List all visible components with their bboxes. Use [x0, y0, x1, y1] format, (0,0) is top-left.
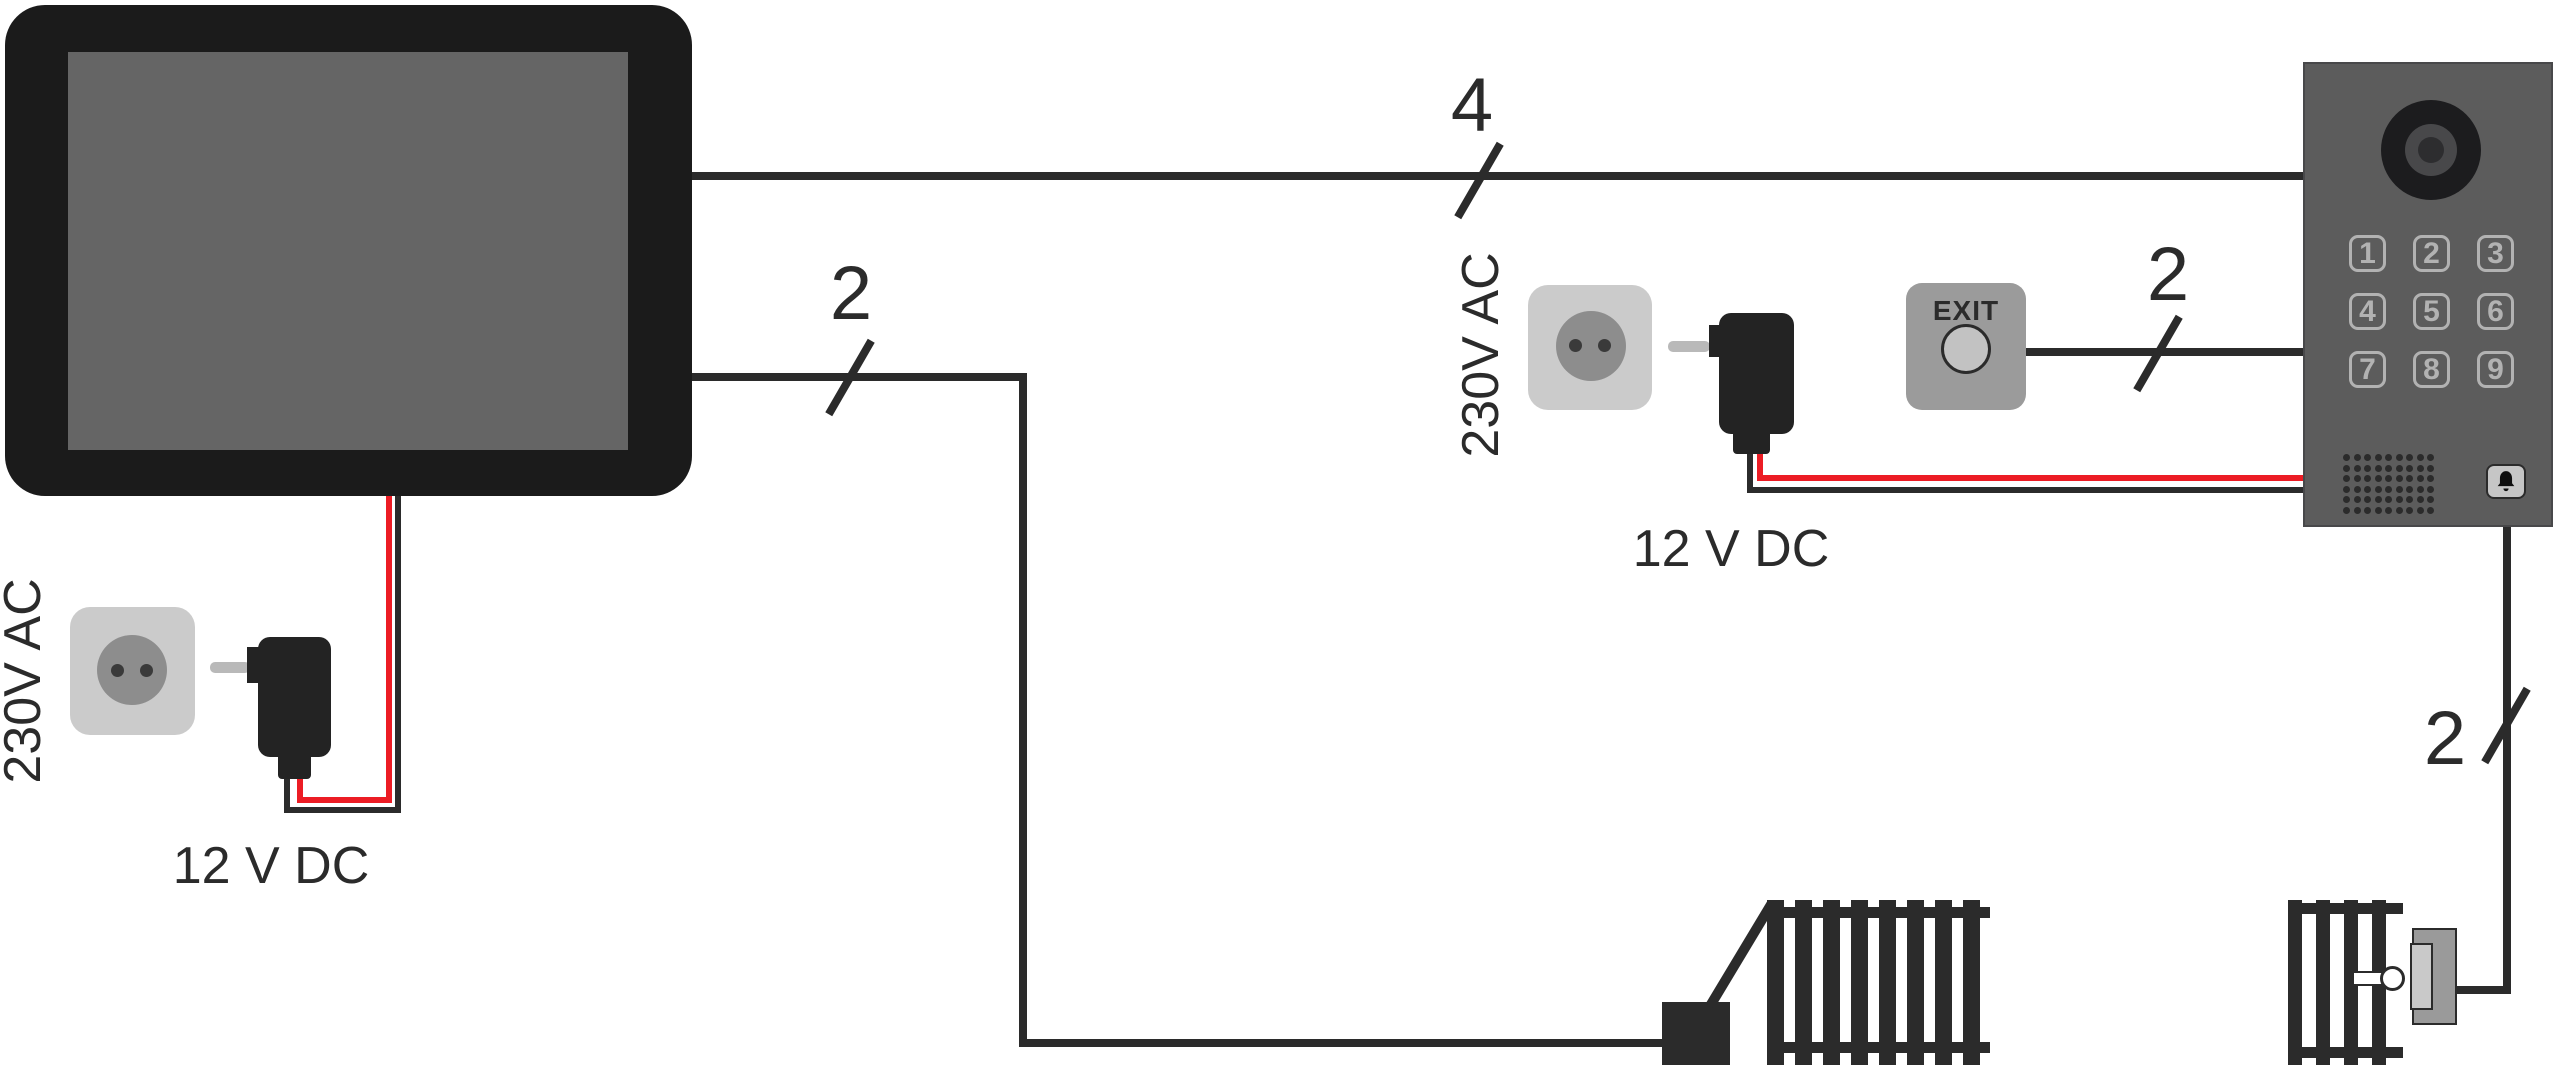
strike-wire-from-panel: [2455, 986, 2511, 994]
coil-bar: [2288, 900, 2302, 1065]
keypad-key-3: 3: [2477, 235, 2514, 272]
lock-wire-from-monitor: [692, 373, 1027, 381]
coil-bar: [1851, 900, 1868, 1065]
speaker-dot: [2417, 454, 2424, 461]
speaker-dot: [2354, 496, 2361, 503]
speaker-dot: [2417, 475, 2424, 482]
speaker-dot: [2406, 507, 2413, 514]
left-power-adapter: [278, 757, 311, 779]
lock-wire-from-monitor: [1019, 1039, 1670, 1047]
left-dc-cable-black: [284, 775, 290, 813]
middle-power-adapter: [1733, 434, 1770, 454]
left-dc-cable-red: [386, 490, 392, 803]
speaker-dot: [2396, 465, 2403, 472]
speaker-dot: [2375, 454, 2382, 461]
lock-connector-block: [1662, 1002, 1730, 1065]
middle-dc-cable-black: [1747, 487, 2303, 493]
speaker-dot: [2354, 454, 2361, 461]
speaker-dot: [2364, 496, 2371, 503]
keypad-key-6: 6: [2477, 293, 2514, 330]
strike-wire-from-panel: [2503, 527, 2511, 994]
left-dc-cable-red: [297, 797, 392, 803]
speaker-dot: [2364, 486, 2371, 493]
exit-pushbutton-icon: [1941, 324, 1991, 374]
wire-count-slash: [1454, 142, 1503, 220]
socket-hole-icon: [111, 664, 124, 677]
keypad-key-8: 8: [2413, 351, 2450, 388]
speaker-dot: [2406, 496, 2413, 503]
door-station-panel: 1 2 3 4 5 6 7 8 9: [2303, 62, 2553, 527]
speaker-dot: [2417, 486, 2424, 493]
speaker-dot: [2364, 454, 2371, 461]
middle-dc-cable-red: [1757, 475, 2303, 481]
speaker-dot: [2375, 486, 2382, 493]
coil-bar: [1879, 900, 1896, 1065]
speaker-dot: [2417, 496, 2424, 503]
latch-bolt-knob: [2380, 966, 2405, 991]
middle-dc-label: 12 V DC: [1581, 521, 1881, 577]
bus-wire-monitor-to-panel: [692, 172, 2303, 180]
socket-hole-icon: [140, 664, 153, 677]
left-dc-cable-red: [297, 775, 303, 803]
speaker-dot: [2354, 465, 2361, 472]
coil-bar: [1963, 900, 1980, 1065]
plug-prong: [210, 662, 250, 673]
speaker-dot: [2396, 475, 2403, 482]
lock-lead-line: [1706, 900, 1777, 1009]
speaker-dot: [2427, 507, 2434, 514]
middle-wall-outlet: [1528, 285, 1652, 410]
speaker-dot: [2354, 507, 2361, 514]
speaker-dot: [2343, 454, 2350, 461]
doorbell-icon: [2493, 470, 2519, 494]
socket-hole-icon: [1598, 339, 1611, 352]
strike-wire-count-label: 2: [2405, 699, 2485, 779]
speaker-dot: [2406, 454, 2413, 461]
keypad-key-1: 1: [2349, 235, 2386, 272]
speaker-dot: [2417, 507, 2424, 514]
keypad-key-2: 2: [2413, 235, 2450, 272]
speaker-dot: [2427, 475, 2434, 482]
speaker-dot: [2375, 496, 2382, 503]
left-wall-outlet: [70, 607, 195, 735]
speaker-dot: [2385, 507, 2392, 514]
speaker-dot: [2396, 486, 2403, 493]
coil-bar: [1823, 900, 1840, 1065]
socket-icon: [97, 635, 167, 705]
middle-power-adapter: [1719, 313, 1794, 434]
left-mains-label: 230V AC: [0, 571, 49, 791]
socket-hole-icon: [1569, 339, 1582, 352]
speaker-dot: [2406, 465, 2413, 472]
doorbell-button: [2486, 464, 2526, 499]
exit-button-label: EXIT: [1906, 295, 2026, 327]
speaker-dot: [2427, 465, 2434, 472]
speaker-dot: [2396, 496, 2403, 503]
speaker-dot: [2427, 496, 2434, 503]
coil-bar: [2316, 900, 2330, 1065]
plug-prong: [1668, 341, 1710, 352]
left-dc-label: 12 V DC: [121, 838, 421, 894]
speaker-dot: [2385, 496, 2392, 503]
coil-bar: [1907, 900, 1924, 1065]
monitor-screen: [68, 52, 628, 450]
speaker-dot: [2385, 465, 2392, 472]
speaker-dot: [2343, 507, 2350, 514]
left-power-adapter: [258, 637, 331, 757]
speaker-dot: [2385, 475, 2392, 482]
exit-wire-count-label: 2: [2128, 235, 2208, 315]
bus-wire-count-label: 4: [1432, 66, 1512, 146]
speaker-dot: [2427, 454, 2434, 461]
speaker-dot: [2406, 475, 2413, 482]
coil-bar: [1935, 900, 1952, 1065]
exit-button-device: EXIT: [1906, 283, 2026, 410]
speaker-dot: [2343, 496, 2350, 503]
keypad-key-4: 4: [2349, 293, 2386, 330]
speaker-dot: [2396, 454, 2403, 461]
left-dc-cable-black: [284, 807, 401, 813]
speaker-dot: [2417, 465, 2424, 472]
keypad-key-5: 5: [2413, 293, 2450, 330]
speaker-dot: [2375, 507, 2382, 514]
speaker-grille-icon: [2343, 454, 2435, 514]
middle-mains-label: 230V AC: [1455, 245, 1507, 465]
speaker-dot: [2364, 465, 2371, 472]
speaker-dot: [2354, 486, 2361, 493]
left-dc-cable-black: [395, 490, 401, 813]
electric-lock-coil: [1767, 900, 1980, 1065]
indoor-monitor: [5, 5, 692, 496]
strike-plate-face: [2410, 943, 2433, 1010]
monitor-lock-wire-count-label: 2: [811, 254, 891, 334]
keypad-key-7: 7: [2349, 351, 2386, 388]
coil-bar: [1767, 900, 1784, 1065]
socket-icon: [1556, 311, 1626, 381]
coil-bar: [1795, 900, 1812, 1065]
speaker-dot: [2396, 507, 2403, 514]
wiring-diagram: 4 2 2 2 230V AC 12 V DC 230V AC 12 V DC …: [0, 0, 2560, 1065]
speaker-dot: [2343, 475, 2350, 482]
speaker-dot: [2364, 507, 2371, 514]
speaker-dot: [2406, 486, 2413, 493]
keypad-key-9: 9: [2477, 351, 2514, 388]
speaker-dot: [2354, 475, 2361, 482]
speaker-dot: [2343, 465, 2350, 472]
speaker-dot: [2375, 465, 2382, 472]
speaker-dot: [2427, 486, 2434, 493]
lock-wire-from-monitor: [1019, 373, 1027, 1047]
camera-lens-icon: [2418, 137, 2444, 163]
speaker-dot: [2375, 475, 2382, 482]
speaker-dot: [2343, 486, 2350, 493]
speaker-dot: [2364, 475, 2371, 482]
speaker-dot: [2385, 454, 2392, 461]
speaker-dot: [2385, 486, 2392, 493]
door-station-keypad: 1 2 3 4 5 6 7 8 9: [2349, 235, 2514, 388]
